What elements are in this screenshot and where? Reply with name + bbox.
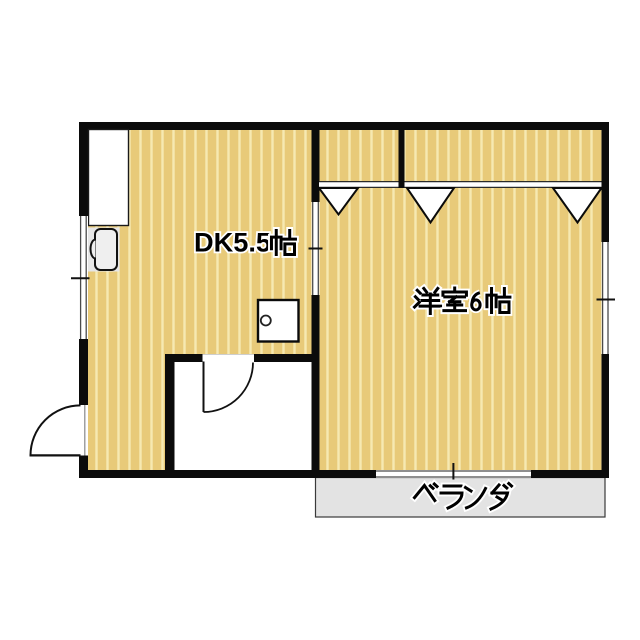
svg-text:DK5.5: DK5.5 bbox=[194, 228, 271, 258]
